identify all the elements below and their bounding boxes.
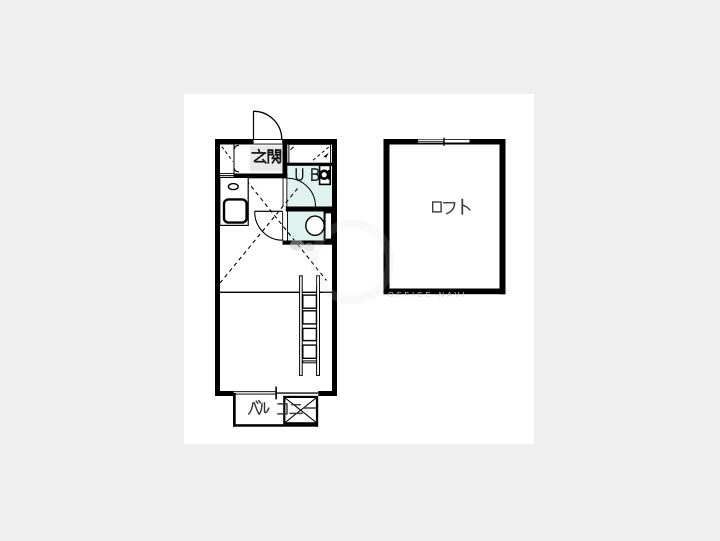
svg-text:OFFICE NAVI: OFFICE NAVI bbox=[388, 290, 468, 299]
